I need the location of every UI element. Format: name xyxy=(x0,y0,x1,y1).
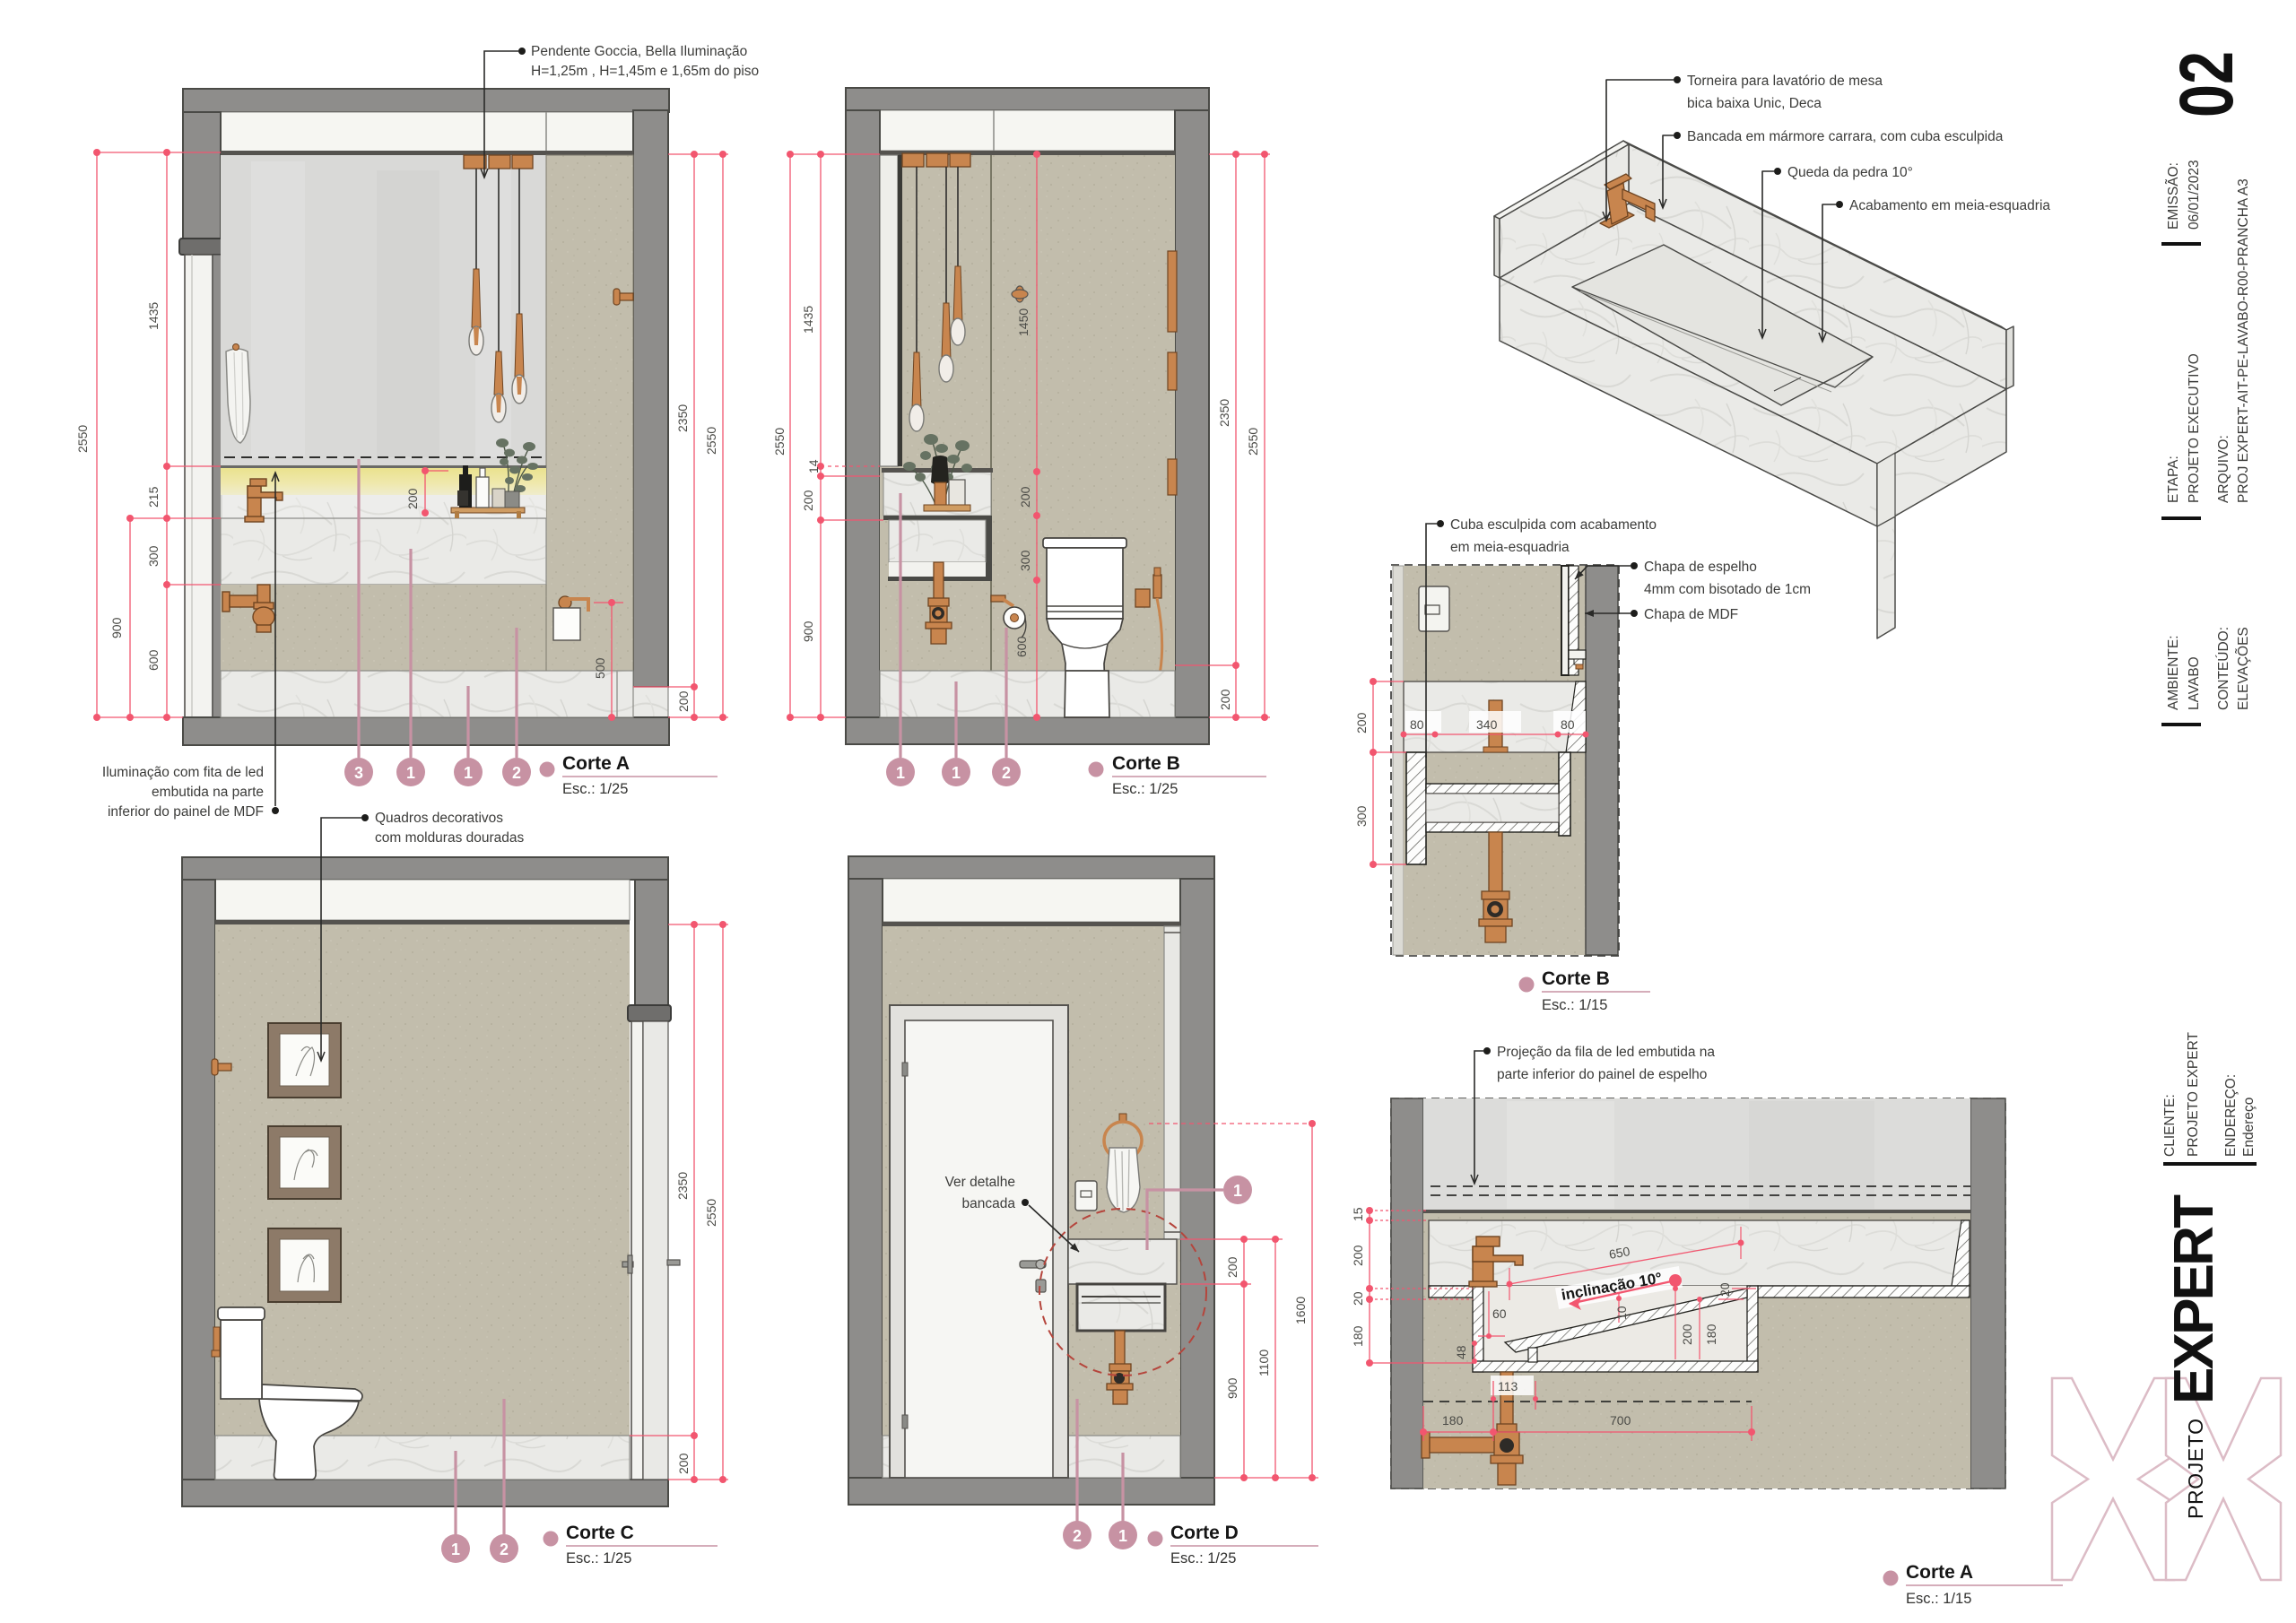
svg-text:PROJETO EXECUTIVO: PROJETO EXECUTIVO xyxy=(2187,353,2202,503)
svg-text:2: 2 xyxy=(1002,764,1011,782)
svg-text:48: 48 xyxy=(1454,1345,1468,1359)
svg-text:200: 200 xyxy=(1218,689,1232,710)
svg-text:ENDEREÇO:: ENDEREÇO: xyxy=(2223,1074,2239,1157)
svg-text:Projeção da fila de led embuti: Projeção da fila de led embutida na xyxy=(1497,1045,1715,1060)
svg-text:02: 02 xyxy=(2164,51,2248,117)
svg-text:200: 200 xyxy=(676,690,691,712)
svg-text:2350: 2350 xyxy=(675,1172,690,1200)
svg-text:Corte D: Corte D xyxy=(1170,1523,1239,1543)
svg-text:4mm com bisotado de 1cm: 4mm com bisotado de 1cm xyxy=(1644,582,1811,597)
svg-text:Esc.: 1/25: Esc.: 1/25 xyxy=(1112,781,1178,797)
svg-text:200: 200 xyxy=(1680,1324,1694,1345)
svg-text:1435: 1435 xyxy=(801,306,815,334)
svg-text:1600: 1600 xyxy=(1293,1297,1308,1324)
svg-text:200: 200 xyxy=(405,488,420,509)
svg-text:Iluminação com fita de led: Iluminação com fita de led xyxy=(102,765,264,780)
svg-text:215: 215 xyxy=(146,486,161,508)
svg-text:900: 900 xyxy=(109,617,124,638)
svg-text:1: 1 xyxy=(1233,1182,1242,1200)
svg-text:06/01/2023: 06/01/2023 xyxy=(2187,160,2202,230)
svg-text:113: 113 xyxy=(1498,1379,1518,1393)
svg-text:em meia-esquadria: em meia-esquadria xyxy=(1450,540,1570,555)
svg-text:LAVABO: LAVABO xyxy=(2187,656,2202,710)
svg-text:300: 300 xyxy=(1018,550,1032,571)
svg-text:200: 200 xyxy=(1354,712,1369,733)
svg-text:Esc.: 1/25: Esc.: 1/25 xyxy=(1170,1550,1236,1567)
svg-text:ELEVAÇÕES: ELEVAÇÕES xyxy=(2236,627,2251,710)
svg-text:embutida na parte: embutida na parte xyxy=(152,785,264,800)
svg-text:Corte C: Corte C xyxy=(566,1523,634,1543)
svg-text:AMBIENTE:: AMBIENTE: xyxy=(2166,635,2181,710)
svg-text:Esc.: 1/25: Esc.: 1/25 xyxy=(566,1550,631,1567)
svg-text:500: 500 xyxy=(593,657,607,679)
svg-text:Corte B: Corte B xyxy=(1112,753,1180,774)
svg-text:700: 700 xyxy=(1610,1413,1631,1428)
svg-text:com molduras douradas: com molduras douradas xyxy=(375,830,525,846)
svg-text:80: 80 xyxy=(1410,717,1424,732)
svg-text:Corte B: Corte B xyxy=(1542,968,1610,989)
svg-text:180: 180 xyxy=(1704,1324,1718,1345)
svg-text:2350: 2350 xyxy=(1217,399,1231,427)
svg-text:1100: 1100 xyxy=(1257,1350,1271,1376)
svg-text:1: 1 xyxy=(451,1541,460,1558)
svg-text:CLIENTE:: CLIENTE: xyxy=(2162,1094,2178,1157)
svg-text:20: 20 xyxy=(1351,1291,1365,1306)
svg-text:Endereço: Endereço xyxy=(2241,1098,2257,1157)
svg-text:Queda da pedra 10°: Queda da pedra 10° xyxy=(1787,165,1913,180)
svg-text:1: 1 xyxy=(1118,1527,1127,1545)
svg-text:600: 600 xyxy=(146,649,161,671)
svg-text:600: 600 xyxy=(1014,636,1029,657)
svg-text:80: 80 xyxy=(1561,717,1575,732)
svg-text:200: 200 xyxy=(1018,486,1032,508)
svg-text:15: 15 xyxy=(1351,1207,1365,1221)
svg-text:20: 20 xyxy=(1718,1282,1732,1297)
svg-text:1: 1 xyxy=(952,764,961,782)
svg-text:2: 2 xyxy=(1073,1527,1082,1545)
svg-text:Chapa de espelho: Chapa de espelho xyxy=(1644,560,1757,575)
svg-text:PROJETO: PROJETO xyxy=(2184,1419,2207,1519)
svg-text:300: 300 xyxy=(146,545,161,567)
svg-text:EXPERT: EXPERT xyxy=(2163,1194,2225,1404)
svg-text:60: 60 xyxy=(1492,1306,1507,1321)
svg-text:180: 180 xyxy=(1442,1413,1464,1428)
svg-text:180: 180 xyxy=(1351,1325,1365,1347)
svg-text:200: 200 xyxy=(1351,1245,1365,1266)
svg-text:200: 200 xyxy=(801,490,815,511)
svg-text:900: 900 xyxy=(801,621,815,642)
svg-text:inferior do painel de MDF: inferior do painel de MDF xyxy=(108,804,264,820)
svg-text:Quadros decorativos: Quadros decorativos xyxy=(375,811,503,826)
svg-text:200: 200 xyxy=(1225,1256,1239,1278)
svg-text:2550: 2550 xyxy=(1246,428,1260,456)
svg-text:H=1,25m , H=1,45m e 1,65m do p: H=1,25m , H=1,45m e 1,65m do piso xyxy=(531,64,759,79)
svg-text:3: 3 xyxy=(354,764,363,782)
svg-text:900: 900 xyxy=(1225,1377,1239,1399)
svg-text:1: 1 xyxy=(406,764,415,782)
svg-text:Cuba esculpida com acabamento: Cuba esculpida com acabamento xyxy=(1450,517,1657,533)
svg-text:200: 200 xyxy=(676,1453,691,1474)
svg-text:2550: 2550 xyxy=(704,427,718,455)
svg-text:Esc.: 1/15: Esc.: 1/15 xyxy=(1542,997,1607,1013)
svg-text:Ver detalhe: Ver detalhe xyxy=(945,1175,1015,1190)
svg-text:ETAPA:: ETAPA: xyxy=(2166,456,2181,503)
svg-text:2: 2 xyxy=(512,764,521,782)
svg-text:1: 1 xyxy=(464,764,473,782)
svg-text:Esc.: 1/15: Esc.: 1/15 xyxy=(1906,1591,1971,1607)
svg-text:Pendente Goccia, Bella Ilumina: Pendente Goccia, Bella Iluminação xyxy=(531,44,747,59)
svg-text:Torneira para lavatório de mes: Torneira para lavatório de mesa xyxy=(1687,74,1883,89)
svg-text:1450: 1450 xyxy=(1016,308,1031,336)
svg-text:Esc.: 1/25: Esc.: 1/25 xyxy=(562,781,628,797)
svg-text:2550: 2550 xyxy=(75,425,90,453)
svg-text:Bancada em mármore carrara, co: Bancada em mármore carrara, com cuba esc… xyxy=(1687,129,2004,144)
svg-text:10: 10 xyxy=(1614,1306,1629,1320)
svg-text:Corte A: Corte A xyxy=(562,753,630,774)
svg-text:1: 1 xyxy=(896,764,905,782)
svg-text:PROJETO EXPERT: PROJETO EXPERT xyxy=(2186,1032,2201,1157)
svg-text:2550: 2550 xyxy=(704,1199,718,1227)
svg-text:PROJ EXPERT-AIT-PE-LAVABO-R00-: PROJ EXPERT-AIT-PE-LAVABO-R00-PRANCHA A3 xyxy=(2236,178,2251,503)
svg-text:Corte A: Corte A xyxy=(1906,1562,1973,1583)
svg-text:bica baixa Unic, Deca: bica baixa Unic, Deca xyxy=(1687,96,1822,111)
svg-text:2: 2 xyxy=(500,1541,509,1558)
svg-text:300: 300 xyxy=(1354,805,1369,827)
svg-text:ARQUIVO:: ARQUIVO: xyxy=(2216,435,2231,503)
svg-text:2350: 2350 xyxy=(675,404,690,432)
svg-text:2550: 2550 xyxy=(772,428,787,456)
svg-text:340: 340 xyxy=(1476,717,1498,732)
svg-text:14: 14 xyxy=(806,459,821,473)
svg-text:1435: 1435 xyxy=(146,302,161,330)
svg-text:Chapa de MDF: Chapa de MDF xyxy=(1644,607,1738,622)
svg-text:Acabamento em meia-esquadria: Acabamento em meia-esquadria xyxy=(1849,198,2050,213)
svg-text:CONTEÚDO:: CONTEÚDO: xyxy=(2216,627,2231,710)
svg-text:EMISSÃO:: EMISSÃO: xyxy=(2166,162,2181,230)
svg-text:parte inferior do painel de es: parte inferior do painel de espelho xyxy=(1497,1067,1707,1082)
svg-text:bancada: bancada xyxy=(962,1196,1016,1211)
